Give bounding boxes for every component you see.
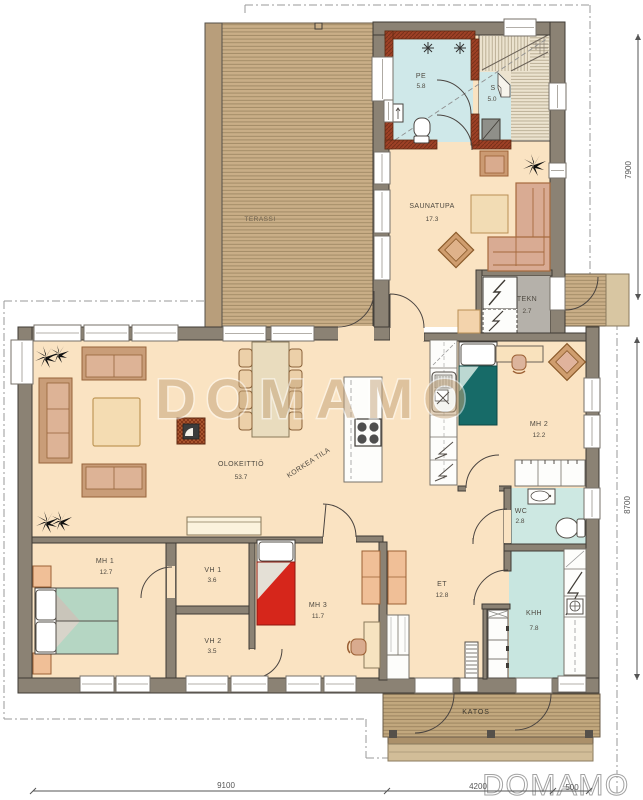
svg-text:9100: 9100 [217, 781, 235, 790]
svg-text:53.7: 53.7 [235, 474, 248, 481]
svg-text:8700: 8700 [623, 496, 632, 514]
svg-text:VH 2: VH 2 [204, 638, 221, 645]
svg-text:500: 500 [565, 783, 579, 792]
svg-text:7900: 7900 [624, 161, 633, 179]
svg-text:MH 3: MH 3 [309, 602, 327, 609]
svg-text:17.3: 17.3 [426, 216, 439, 223]
svg-text:SAUNATUPA: SAUNATUPA [409, 203, 454, 210]
svg-text:4200: 4200 [469, 782, 487, 791]
svg-text:OLOKEITTIÖ: OLOKEITTIÖ [218, 460, 264, 468]
svg-text:MH 2: MH 2 [530, 421, 548, 428]
svg-text:5.0: 5.0 [487, 96, 496, 103]
svg-text:DOMAMO: DOMAMO [482, 769, 629, 800]
svg-text:3.5: 3.5 [207, 648, 216, 655]
svg-text:WC: WC [515, 508, 527, 515]
svg-text:DOMAMO: DOMAMO [155, 367, 476, 430]
svg-text:12.2: 12.2 [533, 432, 546, 439]
svg-text:12.8: 12.8 [436, 592, 449, 599]
svg-text:VH 1: VH 1 [204, 567, 221, 574]
svg-text:2.8: 2.8 [515, 518, 524, 525]
svg-text:TEKN: TEKN [517, 296, 537, 303]
svg-text:ET: ET [437, 581, 447, 588]
svg-text:KATOS: KATOS [462, 709, 490, 716]
svg-text:MH 1: MH 1 [96, 558, 114, 565]
svg-text:11.7: 11.7 [312, 613, 325, 620]
svg-text:5.8: 5.8 [416, 83, 425, 90]
svg-text:TERASSI: TERASSI [244, 216, 275, 223]
svg-text:S: S [490, 85, 495, 92]
svg-text:PE: PE [416, 73, 426, 80]
svg-text:3.6: 3.6 [207, 577, 216, 584]
svg-text:12.7: 12.7 [100, 569, 113, 576]
svg-text:7.8: 7.8 [529, 625, 538, 632]
svg-text:KHH: KHH [526, 610, 542, 617]
svg-text:2.7: 2.7 [522, 308, 531, 315]
